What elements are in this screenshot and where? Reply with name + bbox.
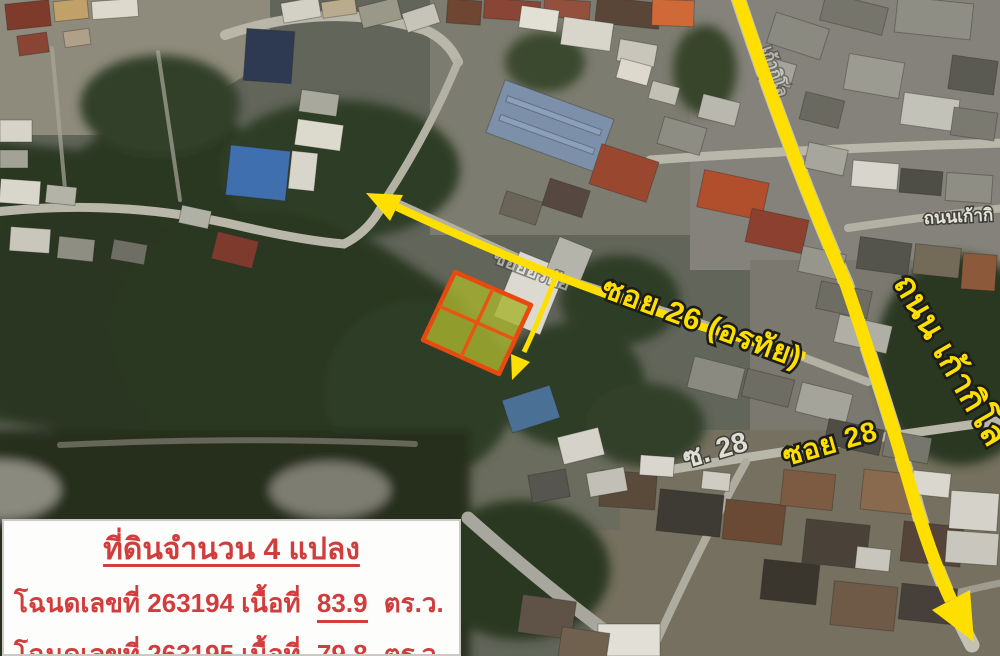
deed-2-text: โฉนดเลขที่ 263195 เนื้อที่	[14, 634, 301, 656]
deed-2-area: 79.8	[317, 639, 368, 656]
land-info-box: ที่ดินจำนวน 4 แปลง โฉนดเลขที่ 263194 เนื…	[2, 519, 461, 656]
deed-1-area: 83.9	[317, 588, 368, 623]
land-ad-satellite-map: ซอยอรทัย เก้ากิโล ถนนเก้ากิ ซ. 28 ซอย 26…	[0, 0, 1000, 656]
deed-2-unit: ตร.ว.	[384, 634, 444, 656]
deed-line-2: โฉนดเลขที่ 263195 เนื้อที่ 79.8 ตร.ว.	[14, 634, 459, 656]
map-label-kao-kilo: ถนนเก้ากิ	[923, 205, 993, 228]
deed-line-1: โฉนดเลขที่ 263194 เนื้อที่ 83.9 ตร.ว.	[14, 583, 459, 624]
deed-1-unit: ตร.ว.	[384, 583, 444, 624]
info-box-title: ที่ดินจำนวน 4 แปลง	[4, 526, 459, 573]
deed-1-text: โฉนดเลขที่ 263194 เนื้อที่	[14, 583, 301, 624]
